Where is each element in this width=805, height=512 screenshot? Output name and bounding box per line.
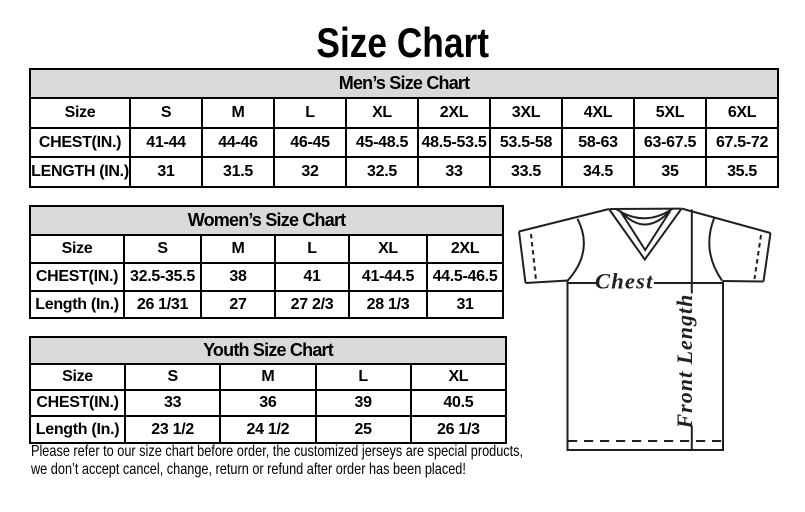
svg-text:Chest: Chest bbox=[595, 269, 654, 294]
svg-text:Front Length: Front Length bbox=[672, 294, 697, 430]
